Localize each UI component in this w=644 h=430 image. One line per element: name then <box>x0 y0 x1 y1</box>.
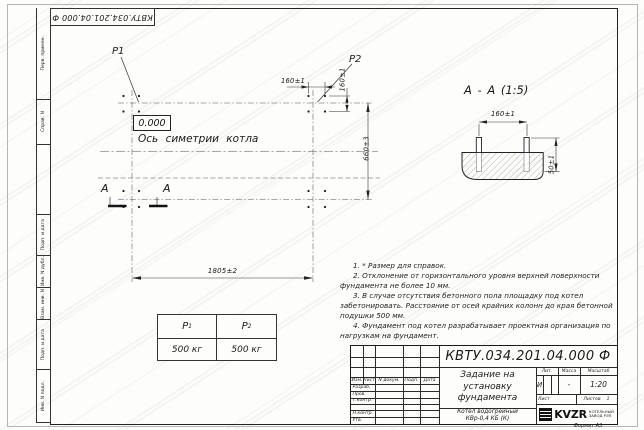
load-value-p1: 500 кг <box>158 339 217 360</box>
doc-number: КВТУ.034.201.04.000 Ф <box>439 346 617 367</box>
product-name: Котел водогрейный КВр-0,4 КБ (К) <box>439 408 536 424</box>
dim-section-bolt-spacing: 160±1 <box>479 110 527 118</box>
scale-value: 1:20 <box>580 375 617 394</box>
factory-name: КОТЕЛЬНЫЙ ЗАВОД РЭП <box>589 410 614 419</box>
kvzr-logo-icon <box>539 408 552 421</box>
elevation-value: 0.000 <box>138 118 165 129</box>
lit-value: И <box>536 375 543 394</box>
top-doc-number-text: КВТУ.034.201.04.000 Ф <box>52 13 153 22</box>
gost-left-column: Перв. примен. Справ. N Подп. и дата Инв.… <box>36 8 51 423</box>
format-label: Формат А3 <box>560 423 616 429</box>
sidebar-cell-podp-data-2: Подп. и дата <box>37 320 51 370</box>
kvzr-logo-text: KVZR <box>554 408 587 421</box>
title-block: Изм. Лист N докум. Подп. Дата Разраб. Пр… <box>350 345 618 425</box>
load-table-value-row: 500 кг 500 кг <box>158 339 276 360</box>
drawing-sheet: КВТУ.034.201.04.000 Ф Перв. примен. Спра… <box>0 0 644 430</box>
sidebar-cell-sprav-n: Справ. N <box>37 100 51 145</box>
dim-foundation-length: 1805±2 <box>132 267 313 275</box>
note-2: 2. Отклонение от горизонтального уровня … <box>340 271 614 291</box>
dim-foundation-width: 660±3 <box>362 129 371 169</box>
rev-col-data: Дата <box>420 377 439 384</box>
top-rotated-doc-number: КВТУ.034.201.04.000 Ф <box>50 8 155 26</box>
sidebar-cell-vzam-inv: Взам. инв. N <box>37 288 51 320</box>
sidebar-cell-empty <box>37 145 51 215</box>
load-point-p1-label: P1 <box>112 46 124 57</box>
load-value-p2: 500 кг <box>217 339 276 360</box>
drawing-title: Задание на установку фундамента <box>439 367 536 408</box>
sidebar-cell-inv-podl: Инв. N подл. <box>37 370 51 423</box>
rev-col-podp: Подп. <box>403 377 420 384</box>
row-utv: Утв. <box>351 417 377 425</box>
sidebar-cell-perv-primen: Перв. примен. <box>37 8 51 100</box>
section-view-title: А - А (1:5) <box>464 83 528 97</box>
dim-bolt-group-vertical: 160±1 <box>337 64 346 94</box>
row-razrab: Разраб. <box>351 384 377 391</box>
section-letter-right: А <box>163 182 171 195</box>
elevation-mark: 0.000 <box>133 115 171 131</box>
technical-notes: 1. * Размер для справок. 2. Отклонение о… <box>340 261 614 341</box>
load-table: P1 P2 500 кг 500 кг <box>157 314 277 361</box>
row-nkontr: Н.контр. <box>351 410 377 417</box>
mass-header: Масса <box>558 367 580 375</box>
dim-section-bolt-height: 50±1 <box>547 148 556 182</box>
note-1: 1. * Размер для справок. <box>340 261 614 271</box>
rev-col-ndocum: N докум. <box>375 377 403 384</box>
sheets-value: 1 <box>607 397 610 402</box>
load-table-header-p2: P2 <box>217 315 276 339</box>
boiler-symmetry-axis-label: Ось симетрии котла <box>138 133 258 145</box>
mass-value: - <box>558 375 580 394</box>
load-point-p2-label: P2 <box>349 54 361 65</box>
lit-header: Лит. <box>536 367 558 375</box>
note-3: 3. В случае отсутствия бетонного пола пл… <box>340 291 614 321</box>
load-table-header-p1: P1 <box>158 315 217 339</box>
note-4: 4. Фундамент под котел разрабатывает про… <box>340 321 614 341</box>
rev-col-list: Лист <box>363 377 375 384</box>
sidebar-cell-inv-dubl: Инв. N дубл. <box>37 256 51 288</box>
sheet-label: Лист <box>536 394 578 404</box>
rev-col-izm: Изм. <box>351 377 363 384</box>
sheets-cell: Листов 1 <box>576 394 617 404</box>
scale-header: Масштаб <box>580 367 617 375</box>
load-table-header-row: P1 P2 <box>158 315 276 339</box>
dim-bolt-group-horizontal: 160±1 <box>281 77 305 85</box>
factory-logo: KVZR КОТЕЛЬНЫЙ ЗАВОД РЭП <box>536 404 617 424</box>
sidebar-cell-podp-data-1: Подп. и дата <box>37 215 51 256</box>
section-letter-left: А <box>101 182 109 195</box>
